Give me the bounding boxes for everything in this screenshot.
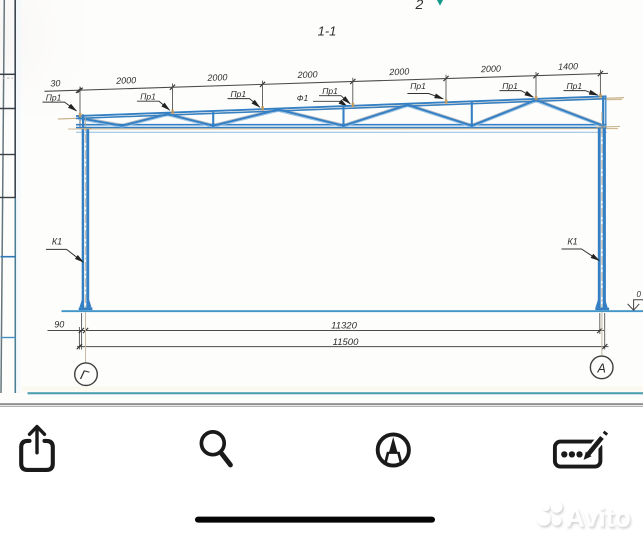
svg-text:Пр1: Пр1 xyxy=(140,92,156,102)
svg-text:К1: К1 xyxy=(52,237,62,247)
svg-text:0: 0 xyxy=(637,290,642,299)
svg-text:2000: 2000 xyxy=(388,66,409,77)
svg-text:1-1: 1-1 xyxy=(318,23,337,38)
svg-text:Пр1: Пр1 xyxy=(230,89,246,99)
svg-text:90: 90 xyxy=(54,320,64,330)
svg-text:2000: 2000 xyxy=(480,64,501,75)
svg-text:2000: 2000 xyxy=(115,75,136,86)
svg-text:2000: 2000 xyxy=(296,69,317,80)
svg-text:Пр1: Пр1 xyxy=(46,92,62,102)
svg-text:Пр1: Пр1 xyxy=(502,81,518,91)
svg-text:Ф1: Ф1 xyxy=(297,93,309,103)
svg-text:Avito: Avito xyxy=(566,503,631,533)
svg-text:Пр1: Пр1 xyxy=(566,81,582,91)
svg-text:1400: 1400 xyxy=(558,61,578,72)
svg-text:Пр1: Пр1 xyxy=(410,81,426,91)
svg-text:2: 2 xyxy=(415,0,424,12)
svg-text:А: А xyxy=(597,361,606,375)
svg-text:2000: 2000 xyxy=(206,72,227,83)
svg-text:К1: К1 xyxy=(567,236,577,246)
svg-text:11320: 11320 xyxy=(331,320,357,331)
svg-text:30: 30 xyxy=(50,78,60,88)
svg-text:11500: 11500 xyxy=(333,337,359,348)
svg-text:Пр1: Пр1 xyxy=(322,86,338,96)
